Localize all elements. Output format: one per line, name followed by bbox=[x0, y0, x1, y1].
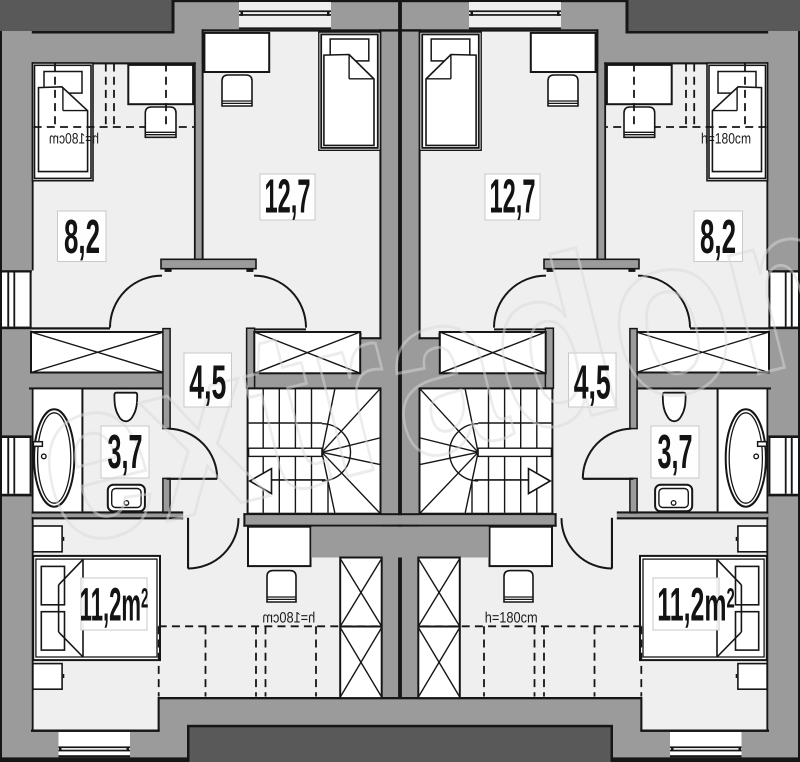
svg-text:12,7: 12,7 bbox=[265, 171, 311, 224]
svg-text:8,2: 8,2 bbox=[700, 211, 736, 264]
svg-text:4,5: 4,5 bbox=[574, 357, 611, 410]
svg-text:11,2m2: 11,2m2 bbox=[80, 578, 149, 631]
svg-text:8,2: 8,2 bbox=[64, 211, 100, 264]
svg-text:12,7: 12,7 bbox=[490, 171, 536, 224]
svg-text:3,7: 3,7 bbox=[108, 426, 143, 479]
svg-text:3,7: 3,7 bbox=[658, 426, 693, 479]
svg-text:11,2m2: 11,2m2 bbox=[657, 578, 735, 631]
svg-text:4,5: 4,5 bbox=[189, 357, 226, 410]
